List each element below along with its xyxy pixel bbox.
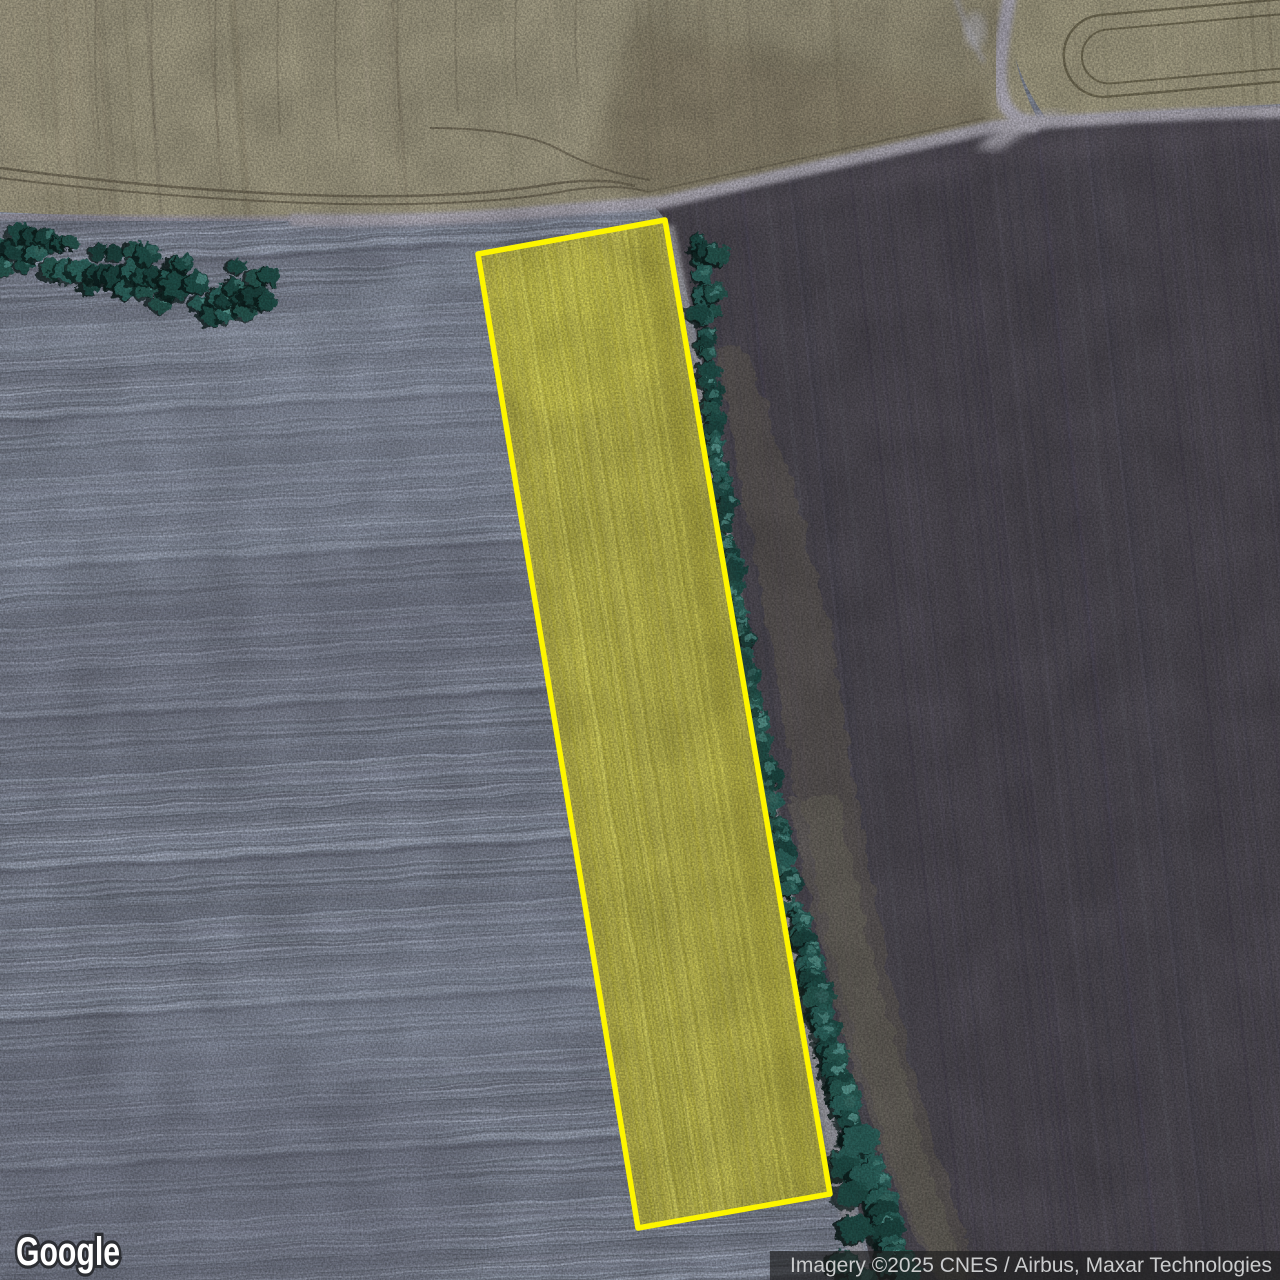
svg-text:Google: Google xyxy=(16,1230,120,1274)
svg-text:Imagery ©2025 CNES / Airbus, M: Imagery ©2025 CNES / Airbus, Maxar Techn… xyxy=(790,1254,1272,1277)
